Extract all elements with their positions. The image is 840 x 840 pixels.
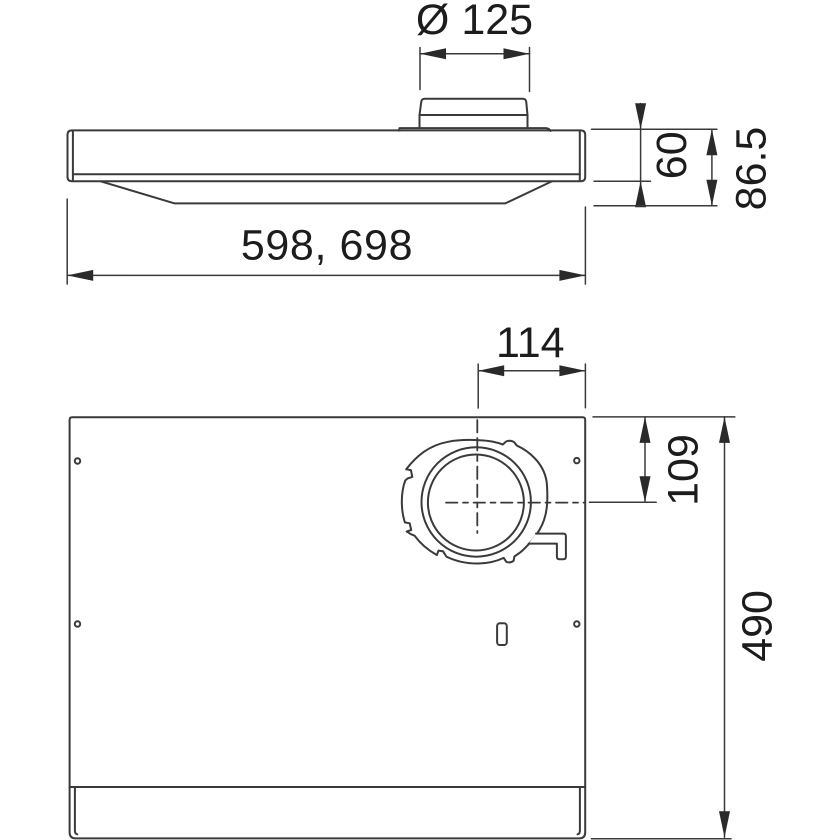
svg-text:Ø 125: Ø 125 — [416, 0, 533, 44]
svg-text:86.5: 86.5 — [728, 127, 776, 211]
svg-text:490: 490 — [734, 590, 782, 662]
svg-text:60: 60 — [648, 131, 696, 179]
svg-text:109: 109 — [660, 434, 708, 506]
svg-text:598, 698: 598, 698 — [241, 222, 413, 270]
svg-text:114: 114 — [496, 319, 565, 367]
